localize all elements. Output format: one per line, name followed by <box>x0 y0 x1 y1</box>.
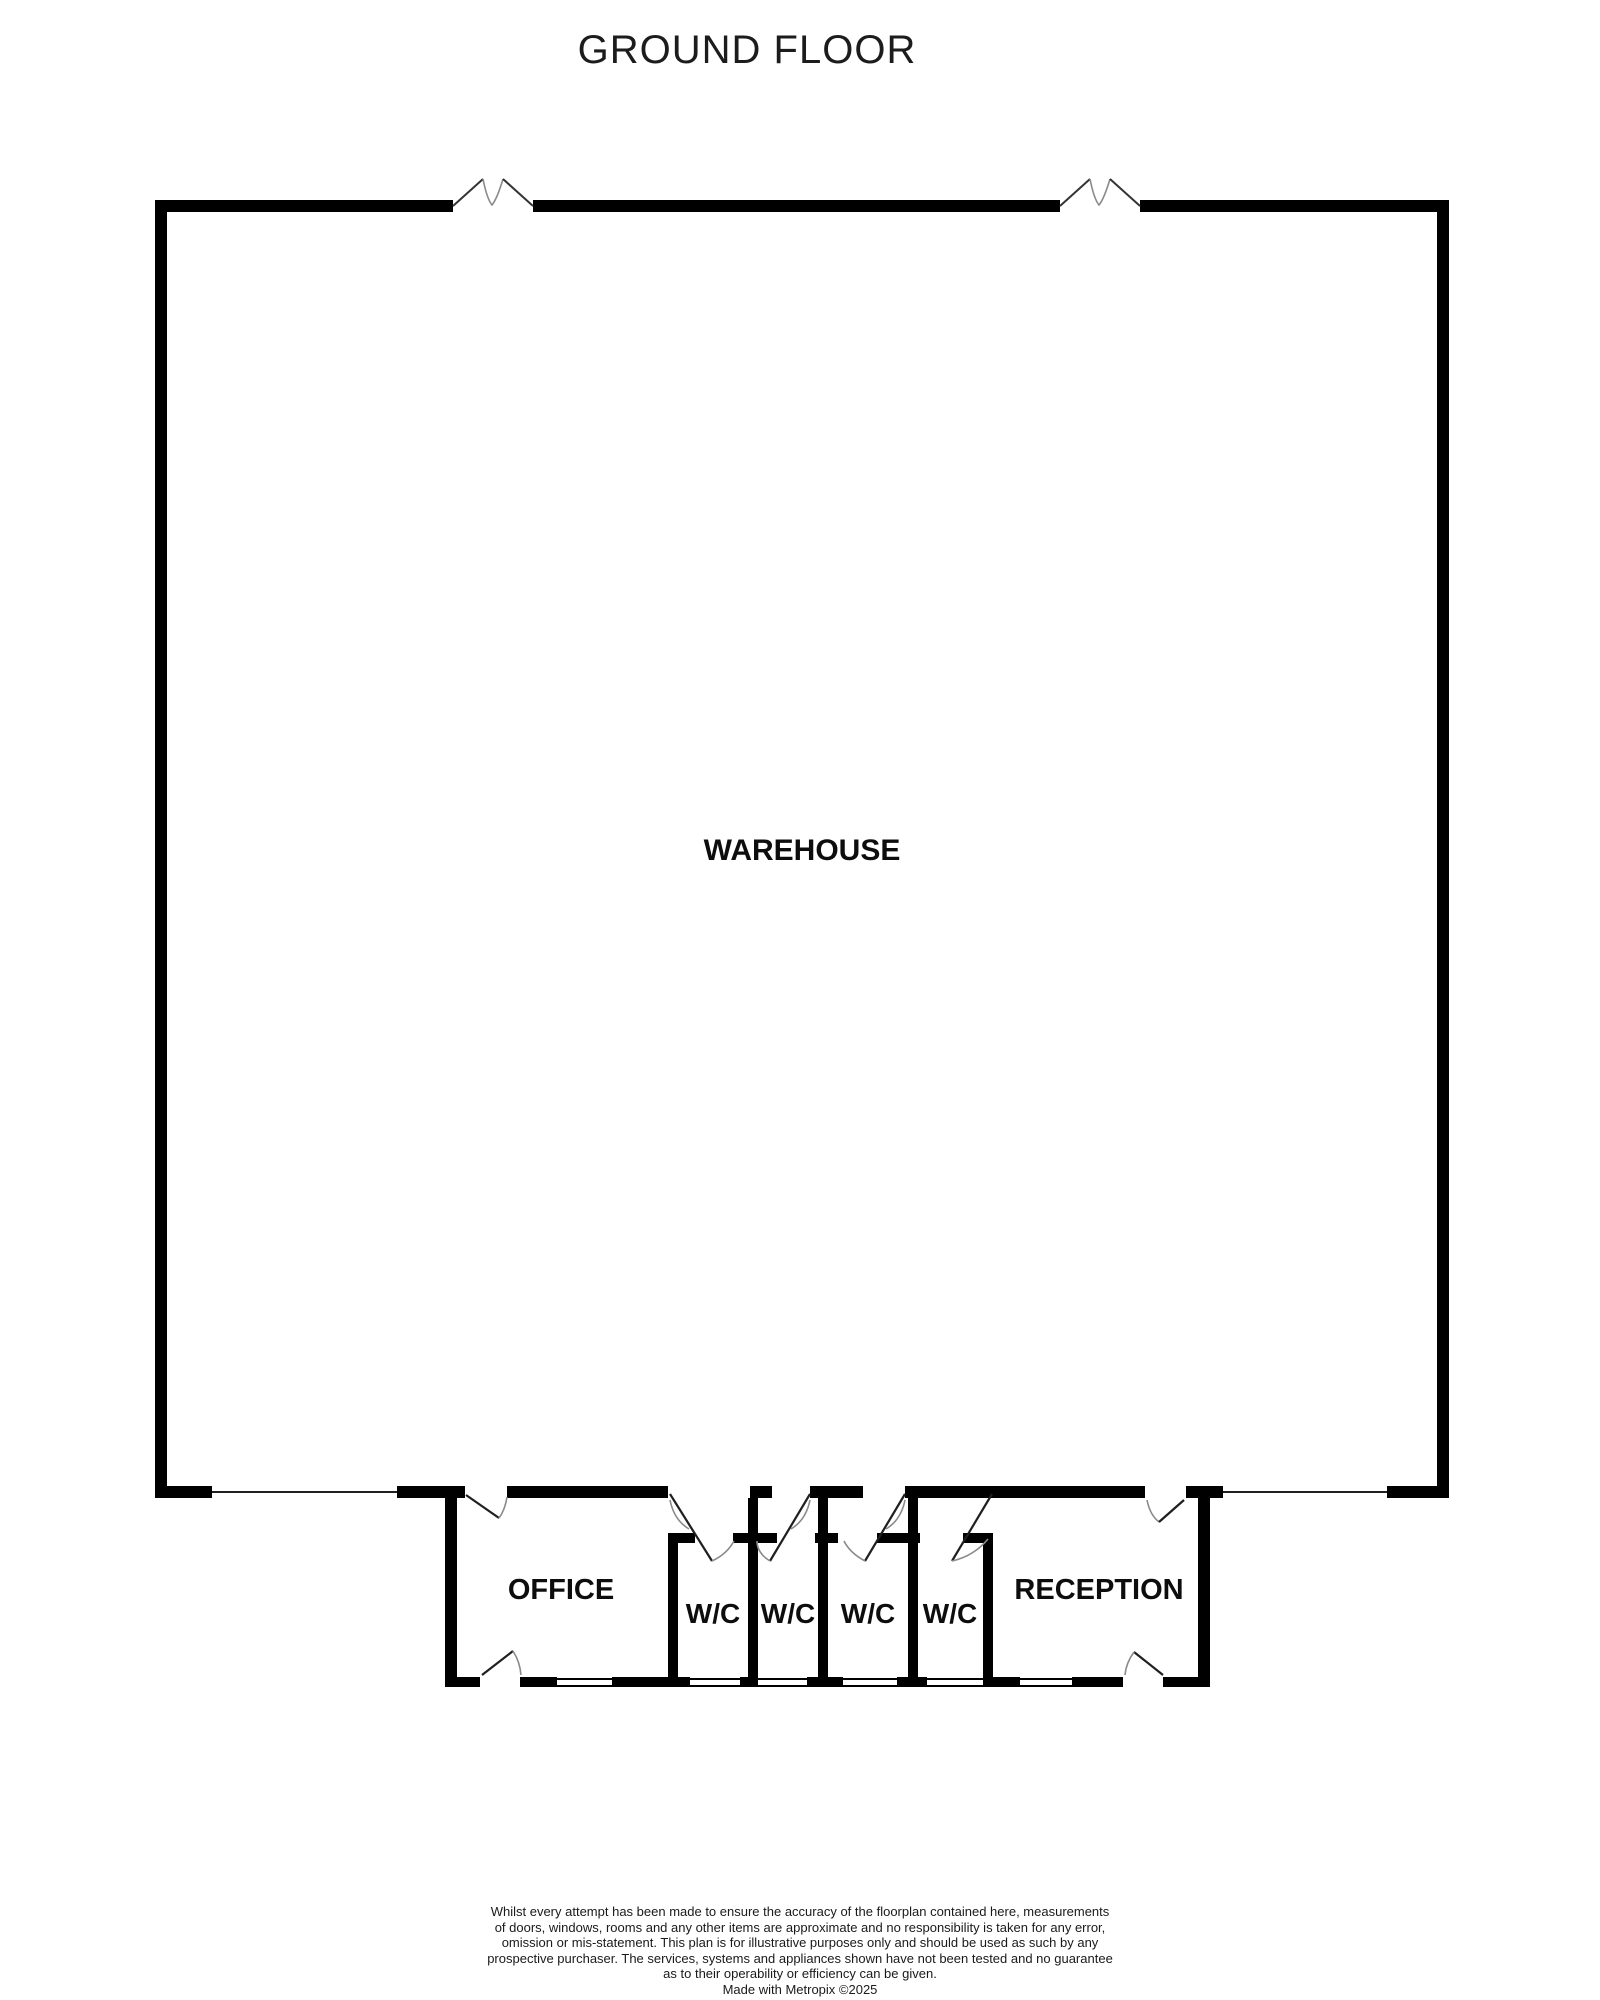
door-swing-icon <box>952 1494 992 1561</box>
door-swing-icon <box>757 1494 810 1561</box>
door-swing-icon <box>1125 1652 1163 1675</box>
disclaimer-line: as to their operability or efficiency ca… <box>0 1966 1600 1982</box>
wall-break-icon <box>1060 179 1140 206</box>
door-swing-icon <box>844 1494 905 1561</box>
disclaimer: Whilst every attempt has been made to en… <box>0 1904 1600 1997</box>
symbol-overlay <box>0 0 1600 2000</box>
metropix-credit: Made with Metropix ©2025 <box>0 1982 1600 1998</box>
door-swing-icon <box>482 1651 521 1675</box>
room-label-warehouse: WAREHOUSE <box>602 834 1002 868</box>
door-swing-icon <box>466 1495 507 1518</box>
room-label-wc-4: W/C <box>900 1598 1000 1630</box>
door-swing-icon <box>1147 1500 1184 1522</box>
room-label-reception: RECEPTION <box>999 1574 1199 1607</box>
floorplan-canvas: GROUND FLOOR <box>0 0 1600 2000</box>
door-swing-icon <box>670 1494 734 1561</box>
disclaimer-line: omission or mis-statement. This plan is … <box>0 1935 1600 1951</box>
disclaimer-line: of doors, windows, rooms and any other i… <box>0 1920 1600 1936</box>
wall-break-icon <box>453 179 533 206</box>
disclaimer-line: Whilst every attempt has been made to en… <box>0 1904 1600 1920</box>
disclaimer-line: prospective purchaser. The services, sys… <box>0 1951 1600 1967</box>
room-label-office: OFFICE <box>461 1574 661 1607</box>
